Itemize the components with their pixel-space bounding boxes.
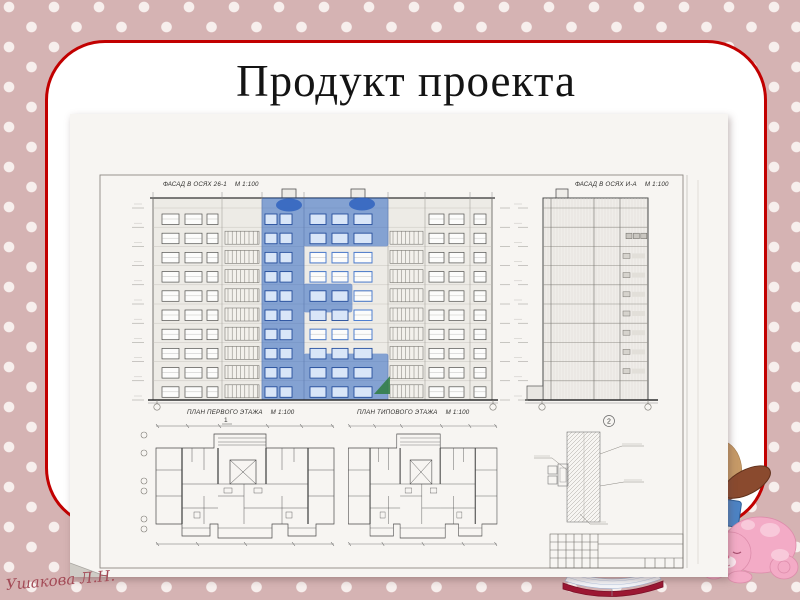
plan-typical-label: ПЛАН ТИПОВОГО ЭТАЖАМ 1:100: [357, 409, 470, 416]
slide-title: Продукт проекта: [48, 55, 764, 107]
detail-callout-number: 2: [607, 419, 611, 426]
facade-main-label: ФАСАД В ОСЯХ 26-1М 1:100: [163, 181, 259, 188]
entrance-porch: [527, 386, 543, 400]
plan-typical-floor: [348, 424, 497, 546]
blue-scribble: [276, 199, 302, 212]
architectural-drawing: ФАСАД В ОСЯХ 26-1М 1:100 ФАСАД В ОСЯХ И-…: [70, 114, 728, 577]
facade-side-label: ФАСАД В ОСЯХ И-АМ 1:100: [575, 181, 669, 188]
roof-parapet: [351, 189, 365, 198]
facade-side: [525, 189, 658, 403]
plan-first-floor: [156, 424, 334, 546]
facade-main: [148, 189, 498, 403]
plan-first-label: ПЛАН ПЕРВОГО ЭТАЖАМ 1:100: [187, 409, 295, 416]
section-cut-mark: 1: [224, 417, 228, 424]
title-block: [550, 534, 683, 568]
junction-detail: 2: [534, 416, 644, 525]
blue-scribble: [349, 198, 375, 211]
slide-background: Продукт проекта: [0, 0, 800, 600]
roof-parapet: [282, 189, 296, 198]
blueprint-sheet: ФАСАД В ОСЯХ 26-1М 1:100 ФАСАД В ОСЯХ И-…: [70, 114, 728, 577]
author-signature: Ушакова Л.Н.: [5, 566, 116, 593]
